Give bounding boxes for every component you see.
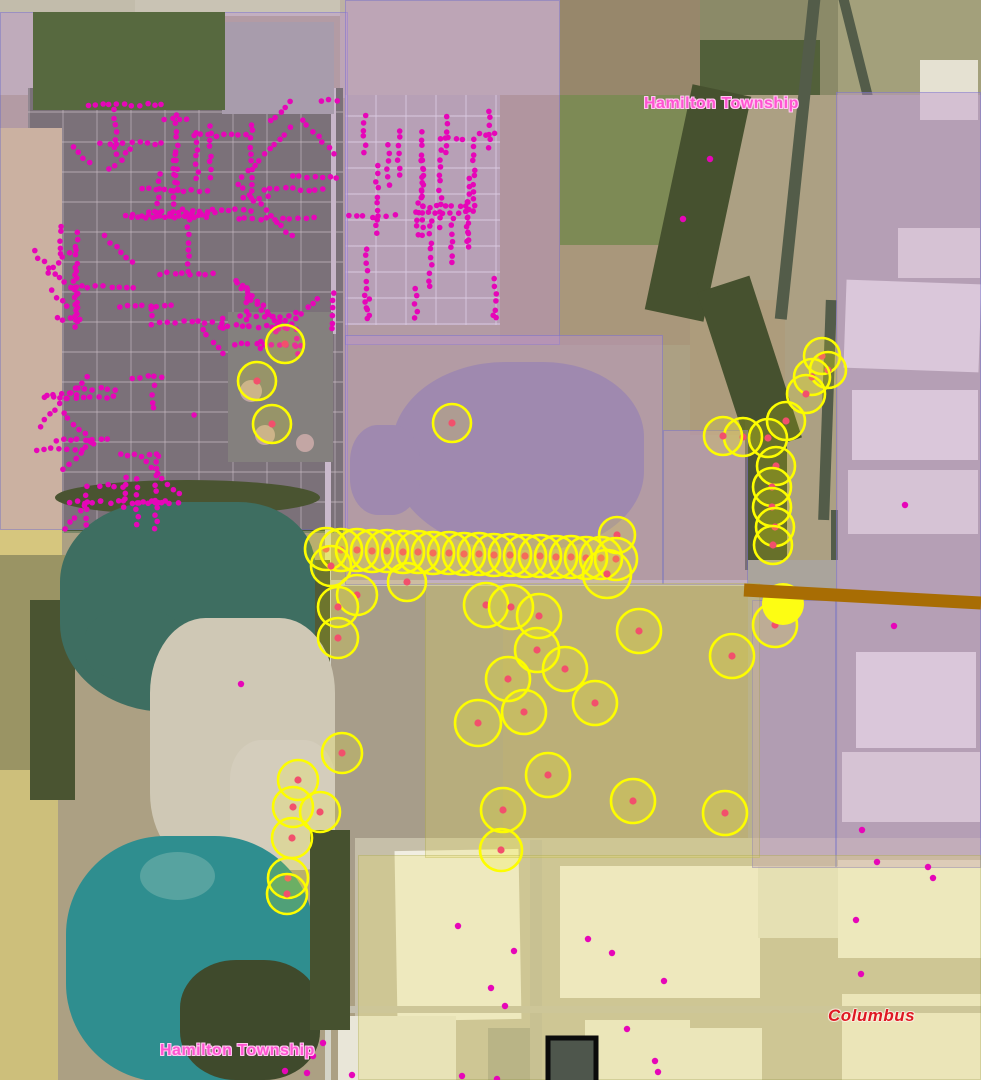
address-point-dot	[146, 373, 152, 379]
address-point-dot	[171, 195, 177, 201]
address-point-dot	[361, 133, 367, 139]
address-point-dot	[327, 145, 333, 151]
address-point-dot	[304, 1070, 310, 1076]
address-point-dot	[250, 127, 256, 133]
address-point-dot	[427, 271, 433, 277]
address-point-dot	[122, 101, 128, 107]
address-point-dot	[68, 390, 74, 396]
address-point-dot	[375, 163, 381, 169]
address-point-dot	[185, 224, 191, 230]
township-label-bottom: Hamilton Township	[160, 1042, 315, 1060]
address-point-dot	[171, 201, 177, 207]
address-point-dot	[432, 210, 438, 216]
address-point-dot	[210, 319, 216, 325]
address-point-dot	[427, 223, 433, 229]
address-point-dot	[414, 223, 420, 229]
address-point-dot	[152, 102, 158, 108]
address-point-dot	[139, 303, 145, 309]
address-point-dot	[42, 259, 48, 265]
address-point-dot	[173, 120, 179, 126]
address-point-dot	[397, 166, 403, 172]
address-point-dot	[204, 215, 210, 221]
address-point-dot	[375, 213, 381, 219]
address-point-dot	[173, 158, 179, 164]
address-point-dot	[486, 132, 492, 138]
address-point-dot	[151, 373, 157, 379]
address-point-dot	[428, 255, 434, 261]
address-point-dot	[174, 180, 180, 186]
address-point-dot	[182, 213, 188, 219]
address-point-dot	[111, 107, 117, 113]
address-point-dot	[319, 98, 325, 104]
address-point-dot	[304, 216, 310, 222]
address-point-dot	[210, 271, 216, 277]
address-point-dot	[241, 215, 247, 221]
address-point-dot	[262, 314, 268, 320]
address-point-dot	[585, 936, 591, 942]
address-point-dot	[454, 136, 460, 142]
address-point-dot	[174, 129, 180, 135]
address-point-dot	[471, 144, 477, 150]
address-point-dot	[236, 216, 242, 222]
address-point-dot	[437, 225, 443, 231]
address-point-dot	[320, 175, 326, 181]
address-point-dot	[123, 213, 129, 219]
address-point-dot	[335, 98, 341, 104]
address-point-dot	[267, 146, 273, 152]
address-point-dot	[211, 340, 217, 346]
address-point-dot	[111, 484, 117, 490]
address-point-dot	[437, 209, 443, 215]
address-point-dot	[445, 121, 451, 127]
address-point-dot	[428, 246, 434, 252]
address-point-dot	[316, 134, 322, 140]
address-point-dot	[143, 459, 149, 465]
address-point-dot	[416, 232, 422, 238]
address-point-dot	[361, 120, 367, 126]
address-point-dot	[72, 515, 78, 521]
address-point-dot	[258, 201, 264, 207]
address-point-dot	[130, 501, 136, 507]
map-viewport[interactable]: Hamilton Township Hamilton Township Colu…	[0, 0, 981, 1080]
address-point-dot	[254, 341, 260, 347]
address-point-dot	[72, 447, 78, 453]
address-point-dot	[320, 1040, 326, 1046]
address-point-dot	[207, 138, 213, 144]
address-point-dot	[487, 114, 493, 120]
address-point-dot	[35, 255, 41, 261]
address-point-dot	[237, 313, 243, 319]
address-point-dot	[331, 151, 337, 157]
address-point-dot	[444, 129, 450, 135]
address-point-dot	[360, 213, 366, 219]
address-point-dot	[97, 140, 103, 146]
address-point-dot	[437, 173, 443, 179]
address-point-dot	[139, 454, 145, 460]
address-point-dot	[149, 313, 155, 319]
address-point-dot	[264, 215, 270, 221]
address-point-dot	[925, 864, 931, 870]
address-point-dot	[245, 341, 251, 347]
address-point-dot	[186, 240, 192, 246]
address-point-dot	[207, 123, 213, 129]
address-point-dot	[346, 213, 352, 219]
address-point-dot	[229, 132, 235, 138]
address-point-dot	[159, 476, 165, 482]
address-point-dot	[218, 325, 224, 331]
address-point-dot	[137, 375, 143, 381]
address-point-dot	[97, 484, 103, 490]
address-point-dot	[281, 132, 287, 138]
address-point-dot	[185, 261, 191, 267]
address-point-dot	[165, 320, 171, 326]
address-point-dot	[202, 320, 208, 326]
address-point-dot	[487, 123, 493, 129]
address-point-dot	[293, 316, 299, 322]
address-point-dot	[74, 269, 80, 275]
address-point-dot	[364, 246, 370, 252]
buffer-center-dot	[561, 665, 568, 672]
address-point-dot	[465, 207, 471, 213]
address-point-dot	[173, 134, 179, 140]
address-point-dot	[186, 247, 192, 253]
address-point-dot	[152, 383, 158, 389]
address-point-dot	[140, 499, 146, 505]
address-point-dot	[203, 332, 209, 338]
address-point-dot	[58, 228, 64, 234]
address-point-dot	[49, 287, 55, 293]
address-point-dot	[116, 284, 122, 290]
address-point-dot	[437, 178, 443, 184]
address-point-dot	[491, 276, 497, 282]
address-point-dot	[153, 187, 159, 193]
address-point-dot	[448, 203, 454, 209]
address-point-dot	[58, 251, 64, 257]
address-point-dot	[364, 286, 370, 292]
buffer-center-dot	[403, 578, 410, 585]
address-point-dot	[187, 213, 193, 219]
address-point-dot	[240, 323, 246, 329]
address-point-dot	[76, 427, 82, 433]
buffer-center-dot	[289, 803, 296, 810]
address-point-dot	[412, 286, 418, 292]
address-point-dot	[655, 1069, 661, 1075]
address-point-dot	[283, 229, 289, 235]
address-point-dot	[290, 173, 296, 179]
address-point-dot	[157, 171, 163, 177]
address-point-dot	[73, 385, 79, 391]
address-point-dot	[375, 171, 381, 177]
address-point-dot	[111, 116, 117, 122]
address-point-dot	[129, 103, 135, 109]
address-point-dot	[134, 476, 140, 482]
address-point-dot	[56, 446, 62, 452]
address-point-dot	[363, 113, 369, 119]
address-point-dot	[249, 182, 255, 188]
address-point-dot	[427, 231, 433, 237]
address-point-dot	[419, 129, 425, 135]
address-point-dot	[152, 142, 158, 148]
address-point-dot	[190, 319, 196, 325]
address-point-dot	[415, 200, 421, 206]
address-point-dot	[420, 225, 426, 231]
address-point-dot	[363, 260, 369, 266]
address-point-dot	[123, 475, 129, 481]
address-point-dot	[195, 147, 201, 153]
address-point-dot	[511, 948, 517, 954]
address-point-dot	[129, 140, 135, 146]
address-point-dot	[78, 508, 84, 514]
address-point-dot	[930, 875, 936, 881]
address-point-dot	[247, 145, 253, 151]
buffer-center-dot	[283, 890, 290, 897]
address-point-dot	[258, 217, 264, 223]
address-point-dot	[493, 315, 499, 321]
address-point-dot	[173, 271, 179, 277]
address-point-dot	[385, 142, 391, 148]
address-point-dot	[268, 118, 274, 124]
address-point-dot	[296, 173, 302, 179]
address-point-dot	[196, 169, 202, 175]
address-point-dot	[157, 272, 163, 278]
address-point-dot	[54, 295, 60, 301]
address-point-dot	[114, 101, 120, 107]
address-point-dot	[444, 143, 450, 149]
address-point-dot	[156, 178, 162, 184]
address-point-dot	[492, 284, 498, 290]
buffer-center-dot	[268, 420, 275, 427]
address-point-dot	[419, 138, 425, 144]
address-point-dot	[202, 272, 208, 278]
address-point-dot	[162, 215, 168, 221]
buffer-center-dot	[294, 776, 301, 783]
address-point-dot	[376, 185, 382, 191]
address-point-dot	[38, 424, 44, 430]
address-point-dot	[232, 206, 238, 212]
address-point-dot	[67, 519, 73, 525]
address-point-dot	[466, 244, 472, 250]
address-point-dot	[100, 283, 106, 289]
address-point-dot	[493, 308, 499, 314]
address-point-dot	[151, 405, 157, 411]
address-point-dot	[256, 158, 262, 164]
address-point-dot	[139, 186, 145, 192]
buffer-center-dot	[719, 432, 726, 439]
address-point-dot	[176, 210, 182, 216]
address-point-dot	[109, 285, 115, 291]
address-point-dot	[298, 188, 304, 194]
address-point-dot	[121, 504, 127, 510]
address-point-dot	[107, 240, 113, 246]
address-point-dot	[156, 500, 162, 506]
address-point-dot	[123, 482, 129, 488]
address-point-dot	[290, 233, 296, 239]
address-point-dot	[874, 859, 880, 865]
address-point-dot	[310, 301, 316, 307]
address-point-dot	[207, 159, 213, 165]
address-point-dot	[329, 326, 335, 332]
address-point-dot	[219, 207, 225, 213]
address-point-dot	[439, 195, 445, 201]
address-point-dot	[471, 196, 477, 202]
address-point-dot	[225, 324, 231, 330]
address-point-dot	[707, 156, 713, 162]
address-point-dot	[124, 285, 130, 291]
address-point-dot	[186, 232, 192, 238]
address-point-dot	[60, 467, 66, 473]
address-point-dot	[429, 241, 435, 247]
address-point-dot	[150, 215, 156, 221]
address-point-dot	[235, 132, 241, 138]
address-point-dot	[330, 305, 336, 311]
address-point-dot	[105, 436, 111, 442]
address-point-dot	[114, 129, 120, 135]
address-point-dot	[243, 132, 249, 138]
address-point-dot	[467, 176, 473, 182]
address-point-dot	[680, 216, 686, 222]
address-point-dot	[250, 167, 256, 173]
address-point-dot	[93, 102, 99, 108]
address-point-dot	[55, 315, 61, 321]
address-point-dot	[419, 152, 425, 158]
address-point-dot	[214, 134, 220, 140]
address-point-dot	[447, 210, 453, 216]
address-point-dot	[154, 519, 160, 525]
address-point-dot	[83, 522, 89, 528]
buffer-center-dot	[629, 797, 636, 804]
address-point-dot	[429, 262, 435, 268]
address-point-dot	[80, 156, 86, 162]
address-point-dot	[105, 482, 111, 488]
address-point-dot	[66, 462, 72, 468]
address-point-dot	[146, 185, 152, 191]
address-point-dot	[129, 376, 135, 382]
address-point-dot	[82, 501, 88, 507]
address-point-dot	[108, 501, 114, 507]
address-point-dot	[74, 300, 80, 306]
address-point-dot	[74, 436, 80, 442]
address-point-dot	[171, 487, 177, 493]
address-point-dot	[177, 491, 183, 497]
address-point-dot	[311, 215, 317, 221]
address-point-dot	[74, 284, 80, 290]
address-point-dot	[240, 283, 246, 289]
address-point-dot	[421, 173, 427, 179]
address-point-dot	[320, 186, 326, 192]
address-point-dot	[149, 322, 155, 328]
buffer-center-dot	[288, 834, 295, 841]
address-point-dot	[312, 187, 318, 193]
address-point-dot	[60, 317, 66, 323]
address-point-dot	[83, 516, 89, 522]
address-point-dot	[282, 318, 288, 324]
address-point-dot	[367, 296, 373, 302]
address-point-dot	[63, 396, 69, 402]
address-point-dot	[175, 143, 181, 149]
address-point-dot	[164, 270, 170, 276]
selected-parcel-rect[interactable]	[548, 1038, 596, 1080]
address-point-dot	[73, 252, 79, 258]
address-point-dot	[149, 498, 155, 504]
address-point-dot	[156, 195, 162, 201]
address-point-dot	[239, 174, 245, 180]
address-point-dot	[455, 923, 461, 929]
buffer-center-dot	[544, 771, 551, 778]
address-point-dot	[74, 275, 80, 281]
buffer-center-dot	[474, 719, 481, 726]
address-point-dot	[170, 209, 176, 215]
address-point-dot	[277, 137, 283, 143]
address-point-dot	[118, 451, 124, 457]
buffer-center-dot	[728, 652, 735, 659]
address-point-dot	[373, 179, 379, 185]
address-point-dot	[125, 303, 131, 309]
address-point-dot	[853, 917, 859, 923]
address-point-dot	[449, 222, 455, 228]
address-point-dot	[249, 175, 255, 181]
buffer-center-dot	[281, 340, 288, 347]
address-point-dot	[330, 313, 336, 319]
address-point-dot	[130, 285, 136, 291]
address-point-dot	[419, 188, 425, 194]
address-point-dot	[208, 154, 214, 160]
address-point-dot	[267, 186, 273, 192]
address-point-dot	[444, 114, 450, 120]
address-point-dot	[465, 215, 471, 221]
address-point-dot	[104, 395, 110, 401]
address-point-dot	[67, 500, 73, 506]
address-point-dot	[168, 188, 174, 194]
address-point-dot	[465, 199, 471, 205]
address-point-dot	[111, 393, 117, 399]
address-point-dot	[154, 201, 160, 207]
address-point-dot	[383, 214, 389, 220]
address-point-dot	[412, 301, 418, 307]
address-point-dot	[73, 456, 79, 462]
address-point-dot	[32, 248, 38, 254]
address-point-dot	[891, 623, 897, 629]
address-point-dot	[48, 445, 54, 451]
address-point-dot	[256, 196, 262, 202]
address-point-dot	[438, 136, 444, 142]
address-point-dot	[135, 500, 141, 506]
address-point-dot	[303, 122, 309, 128]
address-point-dot	[288, 124, 294, 130]
address-point-dot	[173, 149, 179, 155]
address-point-dot	[249, 188, 255, 194]
address-point-dot	[191, 133, 197, 139]
address-point-dot	[212, 210, 218, 216]
address-point-dot	[283, 185, 289, 191]
address-point-dot	[60, 298, 66, 304]
address-point-dot	[134, 492, 140, 498]
address-point-dot	[438, 164, 444, 170]
address-point-dot	[426, 278, 432, 284]
address-point-dot	[396, 143, 402, 149]
address-point-dot	[154, 473, 160, 479]
address-point-dot	[113, 137, 119, 143]
address-point-dot	[162, 303, 168, 309]
address-point-dot	[84, 484, 90, 490]
address-point-dot	[193, 153, 199, 159]
address-point-dot	[248, 158, 254, 164]
address-point-dot	[157, 213, 163, 219]
address-point-dot	[859, 827, 865, 833]
address-point-dot	[419, 194, 425, 200]
address-point-dot	[172, 215, 178, 221]
address-point-dot	[112, 387, 118, 393]
address-point-dot	[162, 187, 168, 193]
